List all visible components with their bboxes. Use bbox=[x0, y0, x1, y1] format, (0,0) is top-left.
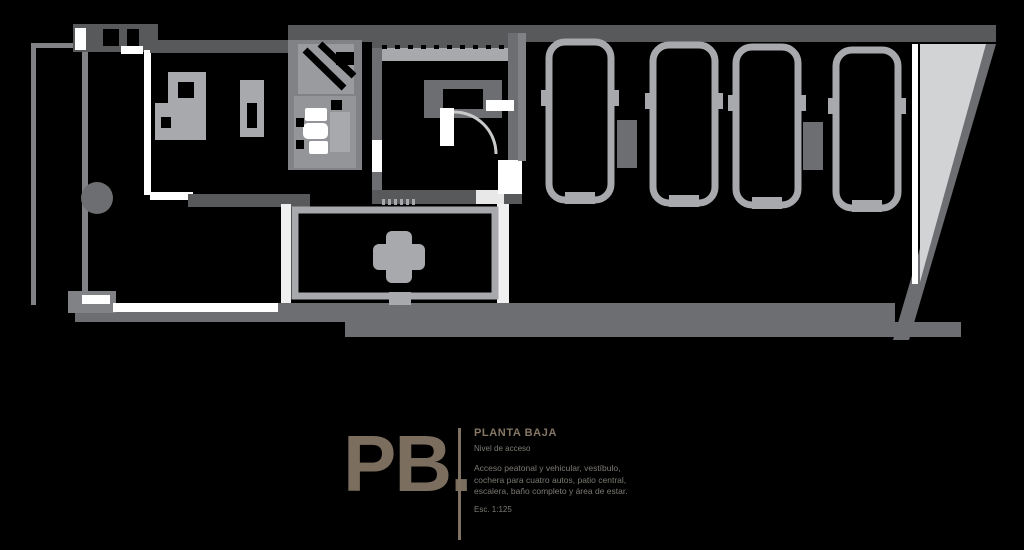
desk-return bbox=[183, 110, 206, 140]
tree-trunk bbox=[389, 292, 411, 305]
car-mirror bbox=[610, 90, 619, 106]
car-mirror bbox=[645, 93, 654, 109]
front-yard-wall bbox=[82, 50, 88, 303]
car-mirror bbox=[541, 90, 550, 106]
bedroom-bottom-wall bbox=[188, 194, 310, 207]
car-4 bbox=[828, 50, 906, 212]
bidet bbox=[309, 141, 328, 154]
bathroom-cutout bbox=[296, 140, 304, 149]
entry-niche bbox=[498, 160, 522, 194]
glass-facade bbox=[113, 303, 278, 312]
bathroom-cutout bbox=[296, 118, 304, 127]
left-boundary-wall bbox=[31, 45, 36, 305]
tree-icon bbox=[373, 244, 425, 270]
car-mirror bbox=[797, 95, 806, 111]
car-bumper bbox=[852, 200, 882, 212]
left-top-wall bbox=[31, 43, 76, 48]
desk-cutout bbox=[178, 82, 194, 98]
ramp-edge bbox=[912, 44, 918, 284]
counter bbox=[380, 48, 512, 61]
bathroom-cutout bbox=[331, 100, 342, 110]
dining-top-wall bbox=[372, 33, 520, 48]
entry-gate bbox=[73, 24, 158, 54]
wall-niche bbox=[486, 100, 514, 111]
dining-left-wall bbox=[372, 48, 382, 198]
gate-door bbox=[75, 28, 86, 50]
dining-door-gap bbox=[372, 140, 382, 172]
bedroom bbox=[144, 40, 310, 207]
car-outline bbox=[836, 50, 898, 208]
floor-plan-canvas bbox=[0, 0, 1024, 550]
bottom-outer-wall bbox=[345, 322, 961, 337]
car-2 bbox=[645, 45, 723, 207]
car-outline bbox=[653, 45, 715, 203]
wardrobe-cutout bbox=[247, 103, 257, 128]
gate-opening bbox=[127, 29, 139, 46]
courtyard-glazing-right bbox=[497, 204, 509, 303]
car-mirror bbox=[728, 95, 737, 111]
bedroom-left-wall bbox=[144, 50, 151, 195]
column bbox=[617, 120, 637, 168]
dining-table-cutout bbox=[443, 89, 483, 109]
bathroom bbox=[294, 96, 356, 168]
column bbox=[803, 122, 823, 170]
courtyard bbox=[281, 202, 509, 305]
toilet bbox=[303, 123, 328, 139]
sink bbox=[305, 108, 327, 121]
car-mirror bbox=[828, 98, 837, 114]
car-bumper bbox=[752, 197, 782, 209]
garage-left-wall bbox=[518, 33, 526, 161]
shower bbox=[330, 112, 350, 152]
stair-void bbox=[336, 52, 354, 65]
chair-cutout bbox=[161, 117, 171, 128]
car-1 bbox=[541, 42, 619, 204]
entry-step-tread bbox=[82, 295, 110, 304]
floor-plan-drawing bbox=[0, 0, 1024, 550]
door-swing-arc bbox=[454, 112, 496, 154]
car-outline bbox=[549, 42, 611, 200]
access-ramp bbox=[912, 44, 986, 284]
bedroom-top-wall bbox=[150, 40, 290, 53]
car-bumper bbox=[669, 195, 699, 207]
gate-step bbox=[121, 46, 143, 54]
courtyard-glazing-left bbox=[281, 204, 291, 303]
gate-opening bbox=[103, 29, 119, 46]
dining-room bbox=[372, 33, 522, 204]
garage bbox=[518, 33, 906, 212]
bush-icon bbox=[81, 182, 113, 214]
car-bumper bbox=[565, 192, 595, 204]
door-leaf bbox=[440, 108, 454, 146]
car-outline bbox=[736, 47, 798, 205]
car-mirror bbox=[897, 98, 906, 114]
car-3 bbox=[728, 47, 806, 209]
car-mirror bbox=[714, 93, 723, 109]
bedroom-bottom-wall-white bbox=[150, 192, 193, 200]
